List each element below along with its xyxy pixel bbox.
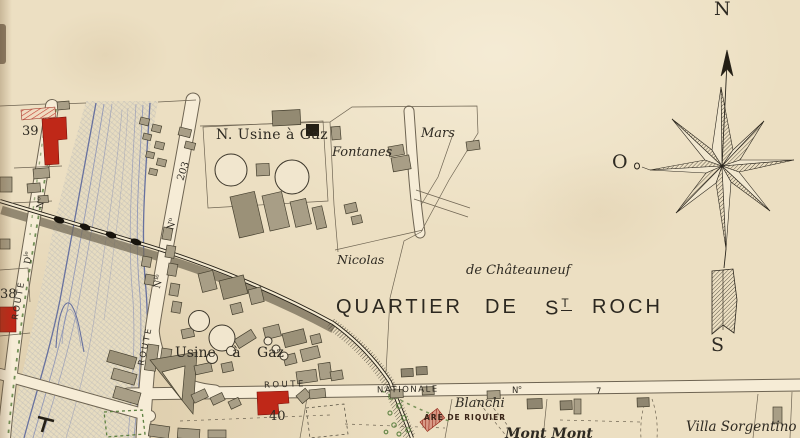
north-arrow-head bbox=[721, 50, 733, 76]
compass-north-label: N bbox=[714, 0, 731, 19]
south-arrow-feather bbox=[712, 269, 737, 334]
compass-south-label: S bbox=[711, 336, 724, 355]
label-mars: Mars bbox=[421, 127, 455, 140]
district-title-word: DE bbox=[485, 296, 519, 319]
label-usine-a-gaz: Usine à Gaz bbox=[175, 346, 284, 360]
label-n-usine-a-gaz: N. Usine à Gaz bbox=[216, 128, 328, 142]
district-title-st: S bbox=[545, 298, 561, 320]
district-title-word: ROCH bbox=[592, 296, 663, 319]
compass-rose bbox=[635, 50, 795, 334]
label-plot-40: 40 bbox=[269, 410, 286, 423]
label-plot-39: 39 bbox=[22, 125, 39, 138]
district-title-word: QUARTIER bbox=[336, 296, 463, 319]
label-gare-de-riquier: ARE DE RIQUIER bbox=[424, 414, 506, 422]
label-mont-mont: Mont Mont bbox=[505, 427, 593, 438]
label-villa-sorgentino: Villa Sorgentino bbox=[686, 421, 797, 435]
label-route-nationale-no: No bbox=[512, 386, 522, 395]
compass-west-label: O bbox=[612, 153, 628, 172]
label-nicolas: Nicolas bbox=[337, 254, 384, 267]
district-title-word: ST bbox=[545, 296, 572, 321]
map-drawing bbox=[0, 0, 800, 438]
label-route-nationale-word: NATIONALE bbox=[377, 385, 439, 395]
label-road-dle: Dle bbox=[23, 251, 35, 265]
label-fontanes: Fontanes bbox=[332, 146, 392, 159]
label-blanchi: Blanchi bbox=[455, 397, 505, 410]
label-route-nationale-7: 7 bbox=[596, 388, 601, 397]
label-route-nationale-route: ROUTE bbox=[264, 380, 306, 390]
antique-map-quartier-st-roch: QUARTIER DE ST ROCH N. Usine à Gaz Fonta… bbox=[0, 0, 800, 438]
label-de-chateauneuf: de Châteauneuf bbox=[466, 264, 571, 277]
district-title-st-sup: T bbox=[561, 296, 571, 311]
